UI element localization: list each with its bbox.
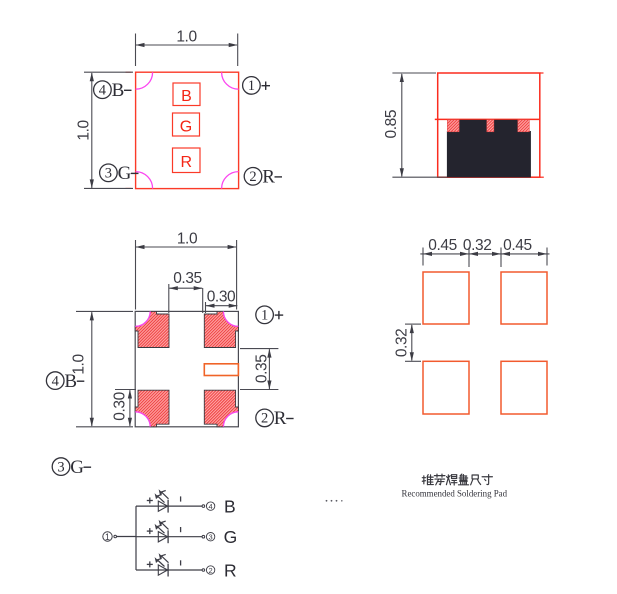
svg-text:4: 4 [52, 373, 60, 389]
svg-text:G: G [70, 457, 84, 478]
svg-text:Recommended Soldering Pad: Recommended Soldering Pad [402, 489, 508, 499]
svg-text:B: B [181, 88, 192, 105]
svg-text:1: 1 [261, 308, 268, 324]
svg-text:R: R [262, 167, 275, 188]
svg-text:R: R [274, 408, 287, 429]
svg-text:G: G [180, 118, 192, 135]
svg-text:3: 3 [105, 166, 112, 182]
svg-text:R: R [181, 154, 193, 171]
svg-text:1: 1 [105, 532, 110, 542]
svg-text:B: B [224, 497, 236, 517]
svg-text:2: 2 [209, 566, 213, 575]
svg-text:2: 2 [261, 411, 268, 427]
svg-text:0.30: 0.30 [111, 391, 128, 420]
svg-text:B: B [64, 371, 77, 392]
svg-text:2: 2 [249, 169, 256, 185]
svg-text:G: G [224, 527, 238, 547]
svg-text:4: 4 [209, 502, 213, 511]
svg-text:R: R [224, 561, 237, 581]
svg-text:0.45: 0.45 [503, 237, 532, 254]
svg-text:G: G [118, 163, 132, 184]
svg-text:1: 1 [248, 78, 255, 94]
svg-text:0.32: 0.32 [463, 237, 492, 254]
svg-text:0.35: 0.35 [253, 355, 270, 384]
svg-text:0.45: 0.45 [428, 237, 457, 254]
svg-text:0.85: 0.85 [383, 110, 400, 139]
svg-text:1.0: 1.0 [177, 231, 198, 248]
svg-text:0.35: 0.35 [173, 270, 202, 287]
svg-text:0.32: 0.32 [393, 329, 410, 358]
svg-text:4: 4 [99, 83, 107, 99]
svg-text:3: 3 [209, 533, 213, 542]
svg-text:3: 3 [57, 459, 64, 475]
svg-text:1.0: 1.0 [176, 29, 197, 46]
svg-text:B: B [112, 80, 125, 101]
svg-text:0.30: 0.30 [207, 289, 236, 306]
svg-text:1.0: 1.0 [76, 119, 93, 140]
